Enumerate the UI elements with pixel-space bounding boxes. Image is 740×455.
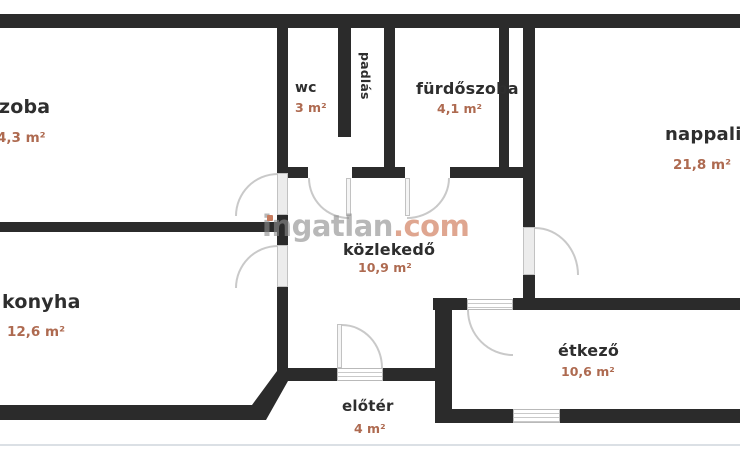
konyha-door-leaf [277,245,288,287]
room-area-konyha: 12,6 m² [7,324,65,340]
room-label-furdoszoba: fürdőszoba [416,79,519,98]
room-label-nappali: nappali [665,124,740,145]
watermark-i-dot-accent [267,215,273,221]
entrance-threshold [337,368,383,381]
room-label-eloter: előtér [342,397,394,415]
floor-plan: zoba 4,3 m² wc 3 m² padlás fürdőszoba 4,… [0,0,740,455]
room-label-szoba: zoba [0,96,50,118]
room-label-wc: wc [295,80,317,96]
entrance-door-leaf [337,324,342,368]
image-frame-line [0,444,740,446]
room-label-kozlekedo: közlekedő [343,240,435,259]
room-area-kozlekedo: 10,9 m² [358,260,412,275]
room-area-furdoszoba: 4,1 m² [437,101,482,116]
room-label-konyha: konyha [2,291,81,313]
room-area-szoba: 4,3 m² [0,130,46,146]
wc-door-leaf [346,178,351,216]
szoba-door-leaf [277,173,288,215]
room-area-nappali: 21,8 m² [673,157,731,173]
room-area-etkezo: 10,6 m² [561,364,615,379]
room-area-wc: 3 m² [295,100,327,115]
room-area-eloter: 4 m² [354,421,386,436]
etkezo-door-leaf [467,299,513,310]
furdoszoba-door-leaf [405,178,410,216]
etkezo-window [513,409,560,423]
room-label-padlas: padlás [358,52,373,114]
nappali-door-leaf [523,227,535,275]
room-label-etkezo: étkező [558,341,619,360]
